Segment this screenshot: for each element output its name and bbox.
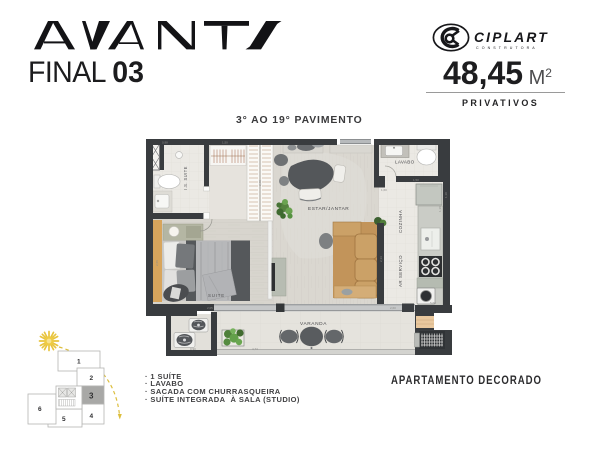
svg-text:2: 2 xyxy=(90,375,94,382)
svg-text:1: 1 xyxy=(77,359,81,366)
svg-text:6: 6 xyxy=(38,406,42,413)
svg-text:3: 3 xyxy=(89,392,94,401)
svg-text:4: 4 xyxy=(90,413,94,420)
svg-text:5: 5 xyxy=(62,416,66,423)
